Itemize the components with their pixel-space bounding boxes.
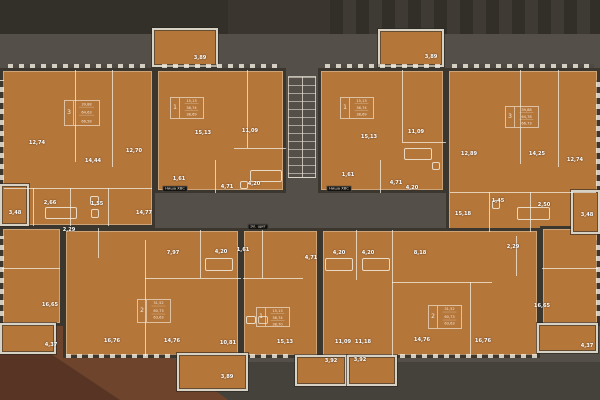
stamp-area-value: 31,52 (152, 302, 166, 307)
room-area-label: 2,66 (44, 200, 57, 205)
partition-line (542, 268, 598, 269)
room-area-label: 3,89 (425, 54, 438, 59)
room-area-label: 4,71 (221, 184, 234, 189)
floor-plan-screenshot: 339,8864,6366,58115,1336,7438,69115,1336… (0, 0, 600, 400)
stamp-area-value: 31,52 (443, 308, 457, 313)
stamp-area-value: 39,88 (79, 103, 94, 108)
stamp-area-value: 38,69 (185, 113, 199, 117)
partition-line (470, 282, 471, 356)
partition-line (234, 148, 286, 149)
window-wall-hatch (0, 236, 4, 316)
apartment-info-stamp: 339,8864,7866,73 (505, 106, 539, 128)
partition-line (108, 188, 109, 226)
stamp-area-rows: 31,5260,7363,63 (438, 306, 461, 328)
top-right-balcony (378, 29, 444, 67)
apartment-unit-bottom-left-outer[interactable] (0, 226, 63, 326)
room-area-label: 1,45 (492, 198, 505, 203)
room-area-label: 14,76 (164, 338, 180, 343)
stamp-area-value: 36,74 (271, 316, 285, 320)
stamp-area-value: 63,63 (152, 317, 166, 321)
room-area-label: 12,74 (567, 157, 583, 162)
room-area-label: 12,70 (126, 148, 142, 153)
top-left-balcony (152, 28, 218, 67)
partition-line (380, 160, 381, 193)
room-area-label: 3,92 (325, 358, 338, 363)
stamp-room-count: 1 (171, 98, 180, 118)
apartment-info-stamp: 231,5260,7363,63 (137, 299, 171, 323)
room-area-label: 3,89 (221, 374, 234, 379)
room-area-label: 2,29 (507, 244, 520, 249)
room-area-label: 16,76 (104, 338, 120, 343)
stamp-area-value: 15,13 (355, 99, 369, 103)
apartment-info-stamp: 115,1336,7438,70 (256, 307, 290, 327)
stamp-area-rows: 15,1336,7438,70 (266, 308, 289, 326)
staircase (288, 76, 316, 178)
apartment-info-stamp: 231,5260,7363,63 (428, 305, 462, 329)
fixture-outline (45, 207, 77, 219)
partition-line (558, 70, 559, 167)
room-area-label: 4,37 (45, 342, 58, 347)
partition-line (402, 70, 403, 142)
stamp-area-value: 63,63 (443, 323, 457, 327)
room-area-label: 15,13 (195, 130, 211, 135)
window-wall-hatch (66, 354, 176, 358)
room-area-label: 7,97 (167, 250, 180, 255)
stamp-area-rows: 39,8864,6366,58 (74, 101, 99, 125)
room-area-label: 12,89 (461, 151, 477, 156)
room-area-label: 11,18 (355, 339, 371, 344)
room-area-label: 2,50 (538, 202, 551, 207)
room-area-label: 16,65 (534, 303, 550, 308)
partition-line (262, 230, 263, 278)
room-area-label: 3,48 (9, 210, 22, 215)
apartment-unit-bottom-left-inner[interactable] (63, 228, 241, 358)
room-area-label: 11,09 (242, 128, 258, 133)
window-wall-hatch (0, 80, 4, 180)
stamp-room-count: 1 (257, 308, 266, 326)
room-area-label: 16,76 (475, 338, 491, 343)
stamp-area-value: 15,13 (271, 309, 285, 313)
window-wall-hatch (325, 64, 440, 68)
partition-line (33, 188, 34, 226)
room-area-label: 16,65 (42, 302, 58, 307)
room-area-label: 3,92 (354, 357, 367, 362)
room-area-label: 15,13 (361, 134, 377, 139)
partition-line (4, 188, 152, 189)
window-wall-hatch (452, 64, 594, 68)
stamp-area-value: 39,88 (520, 108, 534, 112)
room-area-label: 4,20 (362, 250, 375, 255)
partition-line (356, 230, 357, 280)
room-area-label: 2,29 (63, 227, 76, 232)
room-area-label: 8,18 (414, 250, 427, 255)
fixture-outline (432, 162, 440, 170)
stamp-area-value: 36,74 (185, 106, 199, 110)
utility-badge: Эл. щит (248, 224, 268, 230)
stamp-area-value: 64,78 (520, 115, 534, 119)
partition-line (200, 230, 201, 278)
room-area-label: 3,89 (194, 55, 207, 60)
stamp-area-value: 15,13 (185, 99, 199, 103)
window-wall-hatch (596, 240, 600, 316)
room-area-label: 10,81 (220, 340, 236, 345)
room-area-label: 15,18 (455, 211, 471, 216)
room-area-label: 11,09 (335, 339, 351, 344)
fixture-outline (517, 207, 550, 220)
room-area-label: 1,61 (342, 172, 355, 177)
fixture-outline (91, 209, 99, 218)
room-area-label: 4,20 (333, 250, 346, 255)
partition-line (489, 192, 490, 232)
partition-line (247, 70, 248, 148)
stamp-area-value: 60,73 (152, 309, 166, 314)
room-area-label: 3,48 (581, 212, 594, 217)
window-wall-hatch (400, 354, 538, 358)
stamp-area-rows: 15,1336,7438,69 (350, 98, 373, 118)
apartment-info-stamp: 339,8864,6366,58 (64, 100, 100, 126)
stamp-area-value: 36,74 (355, 106, 369, 110)
left-side-balcony (0, 323, 56, 354)
fixture-outline (246, 316, 256, 324)
apartment-info-stamp: 115,1336,7438,69 (340, 97, 374, 119)
stamp-area-value: 38,69 (355, 113, 369, 117)
fixture-outline (205, 258, 233, 271)
stamp-room-count: 2 (429, 306, 438, 328)
window-wall-hatch (8, 64, 148, 68)
stamp-room-count: 1 (341, 98, 350, 118)
room-area-label: 1,55 (91, 201, 104, 206)
stamp-room-count: 3 (506, 107, 515, 127)
room-area-label: 4,71 (390, 180, 403, 185)
room-area-label: 12,74 (29, 140, 45, 145)
stamp-area-rows: 39,8864,7866,73 (515, 107, 538, 127)
partition-line (98, 228, 99, 258)
partition-line (450, 192, 596, 193)
window-wall-hatch (596, 80, 600, 186)
utility-badge: Ниша ХВС (327, 186, 352, 192)
bottom-center-balcony-1 (295, 355, 347, 386)
room-area-label: 4,20 (406, 185, 419, 190)
room-area-label: 4,71 (305, 255, 318, 260)
partition-line (145, 240, 146, 356)
room-area-label: 14,77 (136, 210, 152, 215)
partition-line (516, 236, 517, 276)
partition-line (392, 282, 492, 283)
partition-line (2, 268, 60, 269)
apartment-unit-top-right-inner[interactable] (318, 68, 446, 193)
stamp-area-rows: 15,1336,7438,69 (180, 98, 203, 118)
window-wall-hatch (162, 64, 280, 68)
room-area-label: 4,37 (581, 343, 594, 348)
apartment-unit-bottom-right-outer[interactable] (540, 226, 600, 326)
fixture-outline (325, 258, 353, 271)
partition-line (145, 278, 241, 279)
floor-plan: 339,8864,6366,58115,1336,7438,69115,1336… (0, 0, 600, 400)
left-loggia (0, 184, 29, 226)
partition-line (243, 278, 303, 279)
bottom-left-balcony (177, 353, 248, 391)
partition-line (402, 142, 446, 143)
stamp-area-value: 38,70 (271, 323, 285, 327)
room-area-label: 4,20 (248, 181, 261, 186)
room-area-label: 15,13 (277, 339, 293, 344)
partition-line (215, 160, 216, 193)
room-area-label: 14,76 (414, 337, 430, 342)
stamp-area-value: 64,63 (79, 111, 94, 116)
room-area-label: 14,25 (529, 151, 545, 156)
stamp-area-value: 66,58 (79, 119, 94, 123)
stamp-room-count: 3 (65, 101, 74, 125)
stamp-area-rows: 31,5260,7363,63 (147, 300, 170, 322)
apartment-info-stamp: 115,1336,7438,69 (170, 97, 204, 119)
partition-line (392, 230, 393, 356)
fixture-outline (362, 258, 390, 271)
room-area-label: 1,61 (173, 176, 186, 181)
room-area-label: 14,44 (85, 158, 101, 163)
room-area-label: 1,61 (237, 247, 250, 252)
fixture-outline (404, 148, 432, 160)
stamp-area-value: 60,73 (443, 315, 457, 320)
utility-badge: Ниша ХВС (163, 186, 188, 192)
room-area-label: 4,20 (215, 249, 228, 254)
stamp-area-value: 66,73 (520, 122, 534, 126)
stamp-room-count: 2 (138, 300, 147, 322)
room-area-label: 11,09 (408, 129, 424, 134)
partition-line (112, 70, 113, 167)
window-wall-hatch (250, 354, 294, 358)
